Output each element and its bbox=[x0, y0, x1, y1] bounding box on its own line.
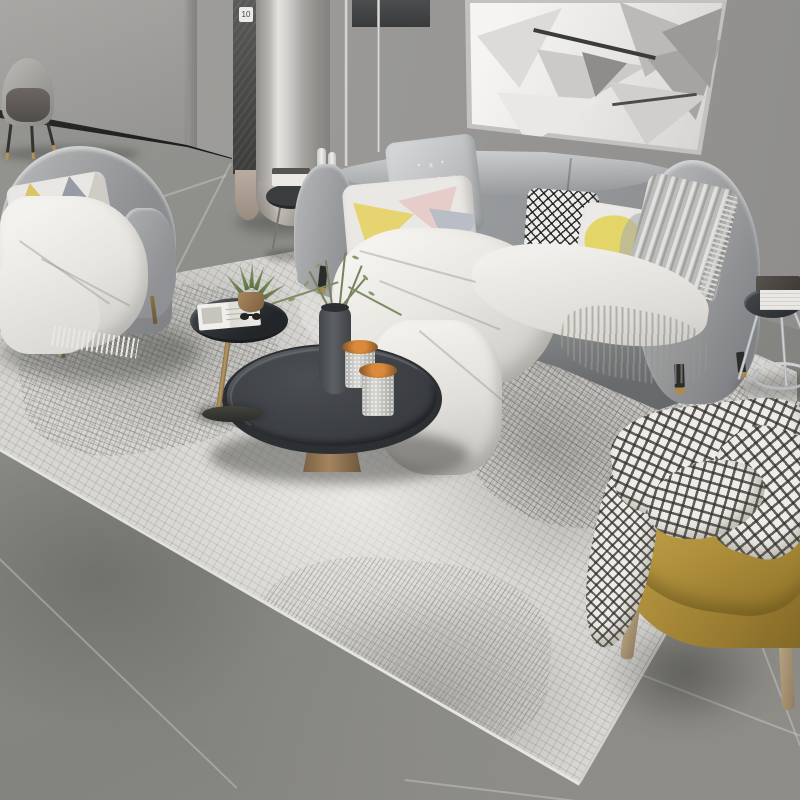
plant-pot bbox=[238, 292, 264, 312]
sunglasses-bridge bbox=[247, 314, 253, 316]
glitter-jar bbox=[362, 372, 394, 416]
book-stack-pages bbox=[760, 290, 800, 310]
column-badge: 10 bbox=[239, 7, 253, 22]
wall-corner-shade bbox=[183, 0, 197, 158]
vase-mouth bbox=[321, 303, 349, 312]
floor-lamp-pole bbox=[344, 0, 348, 166]
side-table-base bbox=[202, 406, 262, 422]
sunglasses-lens bbox=[252, 313, 261, 320]
copper-flower-lid bbox=[342, 340, 378, 354]
column-trim-strip bbox=[233, 0, 257, 174]
floor-lamp-pole bbox=[377, 0, 380, 152]
magazine-photo bbox=[201, 307, 222, 325]
copper-flower-lid bbox=[359, 363, 397, 378]
living-room-photo: 10 bbox=[0, 0, 800, 800]
wall-vent-box bbox=[352, 0, 430, 27]
dining-chair-seat bbox=[6, 88, 50, 122]
